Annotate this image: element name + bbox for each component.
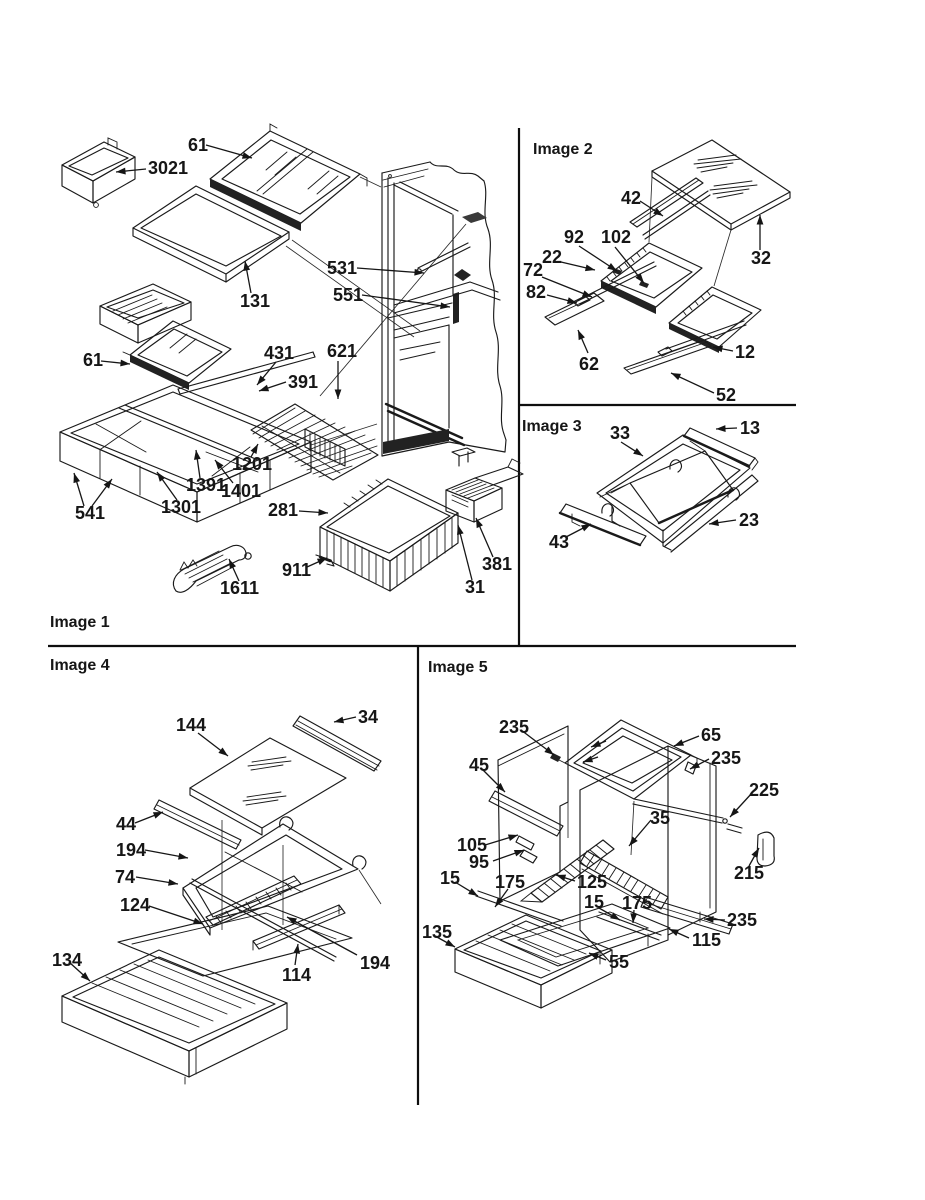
leader-arrowhead	[716, 425, 726, 432]
leader-arrowhead	[575, 329, 585, 340]
part-label-65: 65	[701, 725, 721, 745]
leader-arrowhead	[120, 360, 130, 368]
leader-arrowhead	[673, 739, 684, 749]
image-4-panel: Image 4	[50, 657, 390, 1084]
part-label-431: 431	[264, 343, 294, 363]
leader-arrowhead	[757, 215, 764, 225]
part-label-52: 52	[716, 385, 736, 405]
image-3-part-numbers: 33 13 43 23	[549, 418, 760, 552]
leader-arrowhead	[258, 385, 269, 394]
part-label-82: 82	[526, 282, 546, 302]
part-label-62: 62	[579, 354, 599, 374]
part-label-55: 55	[609, 952, 629, 972]
part-label-35: 35	[650, 808, 670, 828]
part-label-74: 74	[115, 867, 135, 887]
part-label-1201: 1201	[232, 454, 272, 474]
part-label-3021: 3021	[148, 158, 188, 178]
image-3-label: Image 3	[522, 418, 582, 435]
part-label-1401: 1401	[221, 481, 261, 501]
part-label-34: 34	[358, 707, 378, 727]
part-label-92: 92	[564, 227, 584, 247]
part-label-33: 33	[610, 423, 630, 443]
leader-arrowhead	[751, 846, 762, 858]
part-label-1611: 1611	[220, 578, 259, 598]
parts-diagram-page: Image 1	[0, 0, 925, 1200]
image-3-leader-lines	[566, 425, 737, 537]
leader-arrowhead	[154, 470, 165, 482]
part-label-225: 225	[749, 780, 779, 800]
image-5-panel: Image 5	[422, 659, 779, 1008]
leader-arrowhead	[242, 260, 250, 271]
image-3-panel: Image 3	[522, 418, 760, 552]
leader-arrowhead	[251, 442, 261, 454]
part-label-44: 44	[116, 814, 136, 834]
part-label-551: 551	[333, 285, 363, 305]
part-label-31: 31	[465, 577, 485, 597]
part-label-175a: 175	[495, 872, 525, 892]
diagram-canvas: Image 1	[0, 0, 925, 1200]
part-label-391: 391	[288, 372, 318, 392]
part-label-22: 22	[542, 247, 562, 267]
part-label-194a: 194	[116, 840, 146, 860]
leader-arrowhead	[590, 740, 601, 750]
part-label-13: 13	[740, 418, 760, 438]
part-label-281: 281	[268, 500, 298, 520]
leader-arrowhead	[242, 152, 253, 161]
part-label-115: 115	[692, 930, 721, 950]
image-2-label: Image 2	[533, 141, 593, 158]
image-1-label: Image 1	[50, 614, 110, 631]
leader-arrowhead	[670, 370, 681, 380]
part-label-124: 124	[120, 895, 150, 915]
image-1-panel: Image 1	[50, 124, 523, 631]
part-label-131: 131	[240, 291, 270, 311]
part-label-23: 23	[739, 510, 759, 530]
image-2-panel: Image 2	[523, 140, 790, 405]
leader-arrowhead	[335, 390, 342, 400]
part-label-235a: 235	[499, 717, 529, 737]
leader-arrowhead	[585, 265, 596, 274]
leader-arrowhead	[193, 918, 204, 927]
leader-arrowhead	[226, 558, 236, 569]
part-label-135: 135	[422, 922, 452, 942]
part-label-72: 72	[523, 260, 543, 280]
part-label-541: 541	[75, 503, 105, 523]
image-3-drawing	[560, 425, 758, 552]
part-label-134: 134	[52, 950, 82, 970]
image-4-leader-lines	[69, 717, 357, 984]
leader-arrowhead	[333, 717, 344, 726]
part-label-114: 114	[282, 965, 311, 985]
part-label-45: 45	[469, 755, 489, 775]
part-label-42: 42	[621, 188, 641, 208]
part-label-144: 144	[176, 715, 206, 735]
part-label-621: 621	[327, 341, 357, 361]
leader-arrowhead	[104, 477, 115, 489]
image-5-part-numbers: 235 65 235 45 225 35 105 95 15 175 125 1…	[422, 717, 779, 972]
part-label-15b: 15	[584, 892, 604, 912]
part-label-102: 102	[601, 227, 631, 247]
part-label-381: 381	[482, 554, 512, 574]
leader-arrowhead	[610, 912, 622, 923]
part-label-194b: 194	[360, 953, 390, 973]
image-4-drawing	[62, 716, 381, 1084]
part-label-61b: 61	[83, 350, 103, 370]
part-label-1301: 1301	[161, 497, 201, 517]
part-label-911: 911	[282, 560, 311, 580]
part-label-215: 215	[734, 863, 764, 883]
part-label-235b: 235	[711, 748, 741, 768]
part-label-235c: 235	[727, 910, 757, 930]
part-label-175b: 175	[622, 893, 652, 913]
leader-arrowhead	[318, 509, 328, 516]
leader-arrowhead	[630, 913, 638, 923]
part-label-32: 32	[751, 248, 771, 268]
leader-arrowhead	[633, 448, 645, 459]
leader-arrowhead	[116, 168, 126, 176]
image-4-label: Image 4	[50, 657, 110, 674]
part-label-531: 531	[327, 258, 357, 278]
leader-arrowhead	[455, 524, 464, 535]
image-5-label: Image 5	[428, 659, 488, 676]
part-label-43: 43	[549, 532, 569, 552]
part-label-61: 61	[188, 135, 208, 155]
part-label-15a: 15	[440, 868, 460, 888]
part-label-12: 12	[735, 342, 755, 362]
part-label-95: 95	[469, 852, 489, 872]
leader-arrowhead	[178, 853, 189, 861]
leader-arrowhead	[71, 472, 80, 483]
part-label-125: 125	[577, 872, 607, 892]
